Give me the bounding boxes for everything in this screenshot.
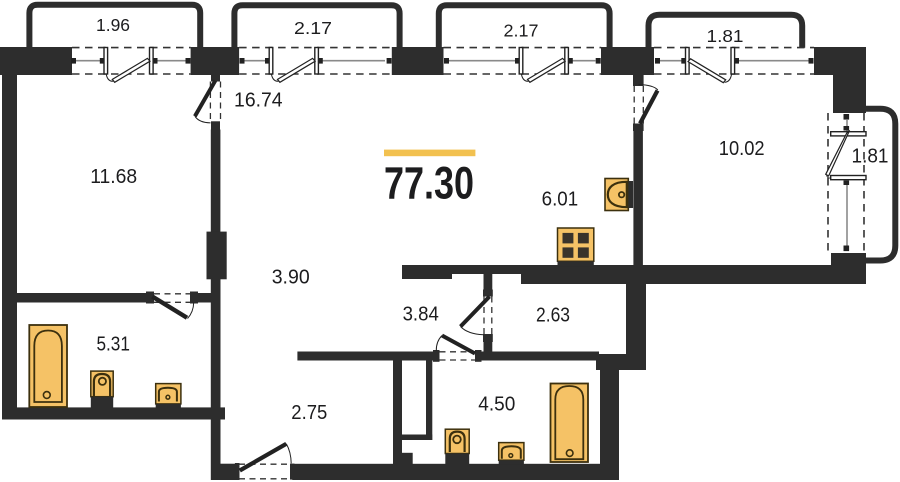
svg-text:1.81: 1.81: [852, 145, 889, 167]
svg-text:1.96: 1.96: [96, 15, 130, 35]
svg-text:2.63: 2.63: [536, 304, 570, 327]
svg-text:4.50: 4.50: [478, 393, 515, 416]
svg-text:3.84: 3.84: [403, 303, 439, 326]
svg-text:16.74: 16.74: [234, 89, 283, 112]
svg-text:2.75: 2.75: [291, 401, 327, 424]
svg-text:3.90: 3.90: [272, 266, 310, 289]
svg-text:2.17: 2.17: [504, 21, 539, 41]
svg-text:77.30: 77.30: [384, 158, 474, 209]
svg-text:11.68: 11.68: [90, 165, 137, 188]
svg-text:1.81: 1.81: [707, 26, 744, 46]
svg-text:6.01: 6.01: [542, 187, 579, 210]
svg-text:5.31: 5.31: [96, 332, 130, 355]
svg-text:2.17: 2.17: [294, 18, 332, 38]
svg-text:10.02: 10.02: [719, 137, 765, 160]
